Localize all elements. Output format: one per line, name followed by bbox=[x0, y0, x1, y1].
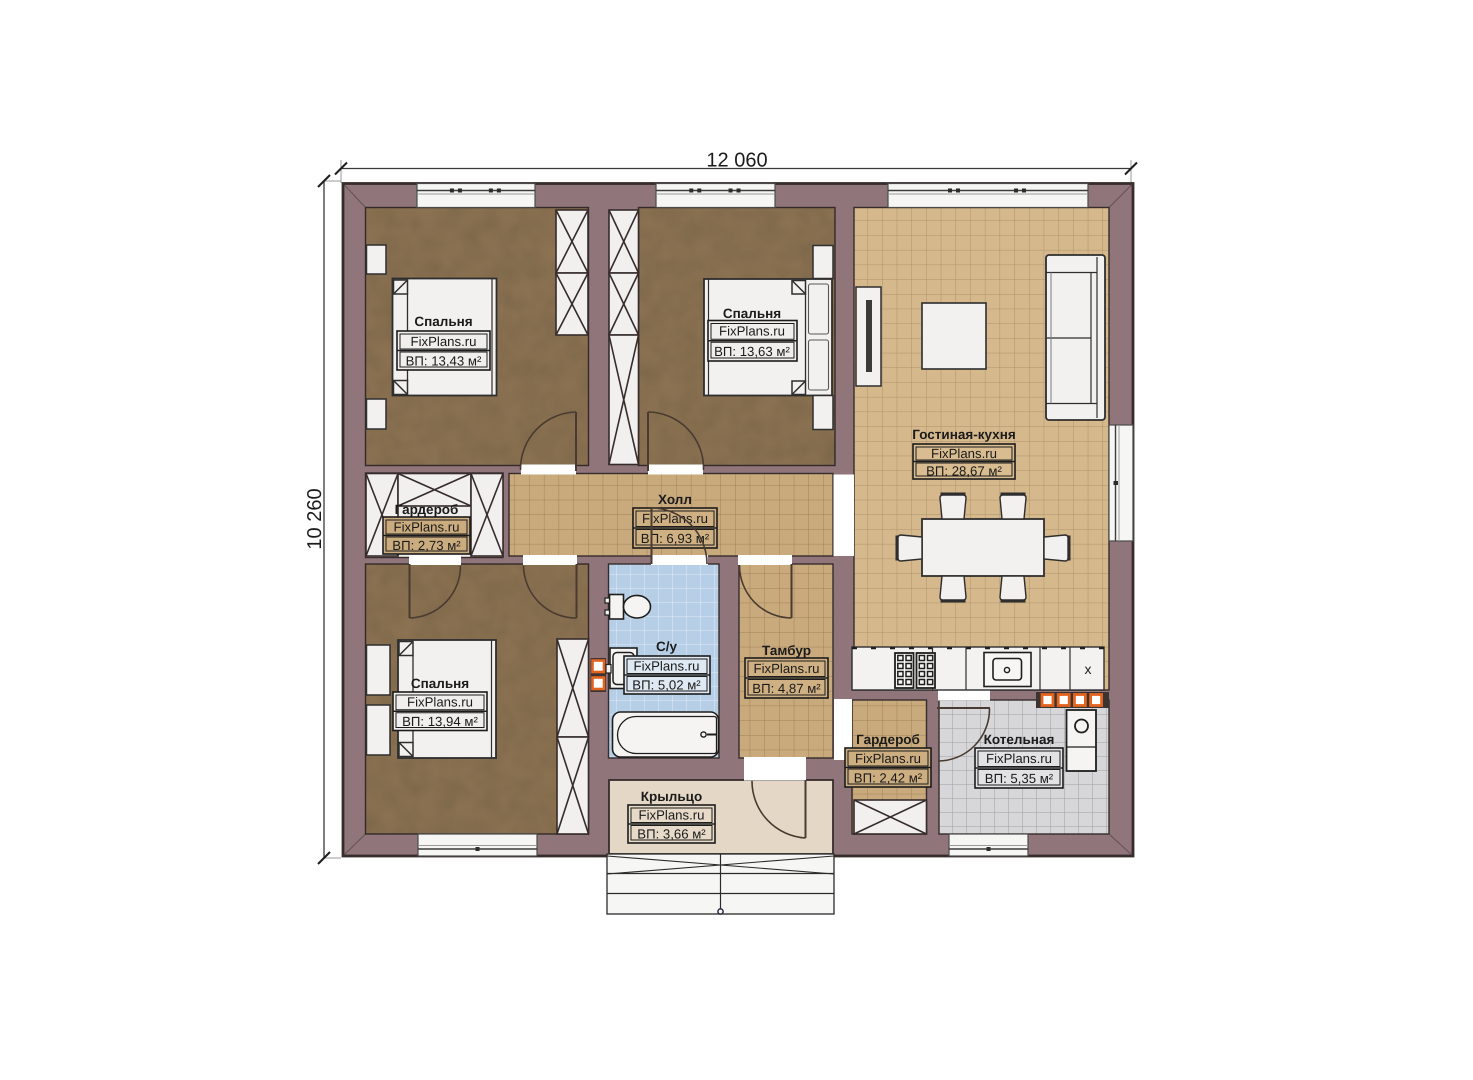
svg-text:10 260: 10 260 bbox=[304, 488, 326, 549]
svg-text:Гардероб: Гардероб bbox=[395, 502, 459, 517]
svg-text:FixPlans.ru: FixPlans.ru bbox=[719, 324, 785, 339]
svg-text:FixPlans.ru: FixPlans.ru bbox=[407, 695, 473, 710]
svg-text:FixPlans.ru: FixPlans.ru bbox=[639, 808, 705, 823]
svg-text:ВП: 2,42 м²: ВП: 2,42 м² bbox=[854, 770, 923, 785]
svg-text:ВП: 5,35 м²: ВП: 5,35 м² bbox=[985, 771, 1054, 786]
svg-text:ВП: 28,67 м²: ВП: 28,67 м² bbox=[926, 463, 1002, 478]
svg-text:ВП: 2,73 м²: ВП: 2,73 м² bbox=[392, 538, 461, 553]
svg-text:Котельная: Котельная bbox=[984, 732, 1055, 747]
svg-text:FixPlans.ru: FixPlans.ru bbox=[411, 334, 477, 349]
svg-text:ВП: 13,63 м²: ВП: 13,63 м² bbox=[714, 344, 790, 359]
svg-text:Тамбур: Тамбур bbox=[762, 643, 811, 658]
svg-text:12 060: 12 060 bbox=[706, 150, 767, 172]
svg-text:ВП: 5,02 м²: ВП: 5,02 м² bbox=[632, 678, 701, 693]
svg-text:Спальня: Спальня bbox=[411, 676, 469, 691]
svg-text:Крыльцо: Крыльцо bbox=[641, 789, 702, 804]
svg-text:Холл: Холл bbox=[658, 492, 692, 507]
svg-text:x: x bbox=[1085, 661, 1092, 677]
svg-text:ВП: 13,94 м²: ВП: 13,94 м² bbox=[402, 714, 478, 729]
svg-text:ВП: 3,66 м²: ВП: 3,66 м² bbox=[637, 827, 706, 842]
svg-text:FixPlans.ru: FixPlans.ru bbox=[855, 751, 921, 766]
svg-text:Гостиная-кухня: Гостиная-кухня bbox=[912, 427, 1015, 442]
svg-text:ВП: 13,43 м²: ВП: 13,43 м² bbox=[406, 353, 482, 368]
svg-text:FixPlans.ru: FixPlans.ru bbox=[634, 659, 700, 674]
svg-text:FixPlans.ru: FixPlans.ru bbox=[754, 661, 820, 676]
svg-text:FixPlans.ru: FixPlans.ru bbox=[931, 446, 997, 461]
svg-text:Спальня: Спальня bbox=[723, 306, 781, 321]
svg-text:Гардероб: Гардероб bbox=[856, 732, 920, 747]
svg-text:С/у: С/у bbox=[656, 639, 678, 654]
svg-text:Спальня: Спальня bbox=[414, 314, 472, 329]
svg-text:FixPlans.ru: FixPlans.ru bbox=[986, 751, 1052, 766]
svg-text:ВП: 4,87 м²: ВП: 4,87 м² bbox=[752, 681, 821, 696]
svg-text:FixPlans.ru: FixPlans.ru bbox=[394, 519, 460, 534]
